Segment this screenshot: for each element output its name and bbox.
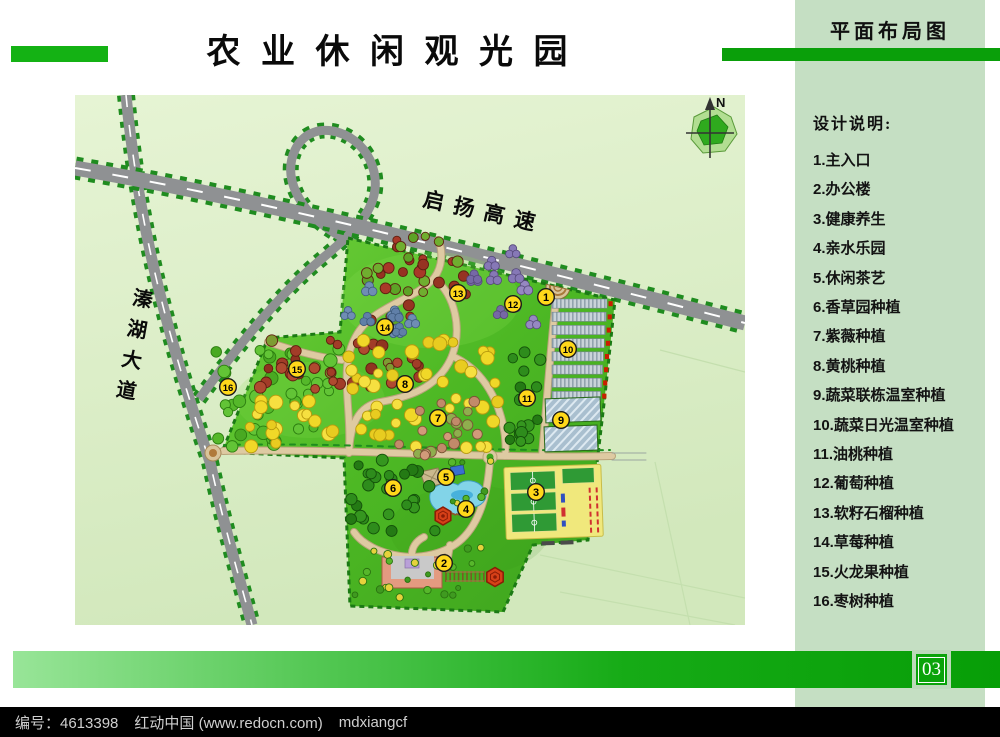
legend-item-9: 9.蔬菜联栋温室种植	[813, 381, 988, 410]
svg-text:5: 5	[443, 472, 449, 484]
map-marker-6: 6	[385, 480, 402, 497]
map-marker-13: 13	[450, 285, 467, 302]
legend-item-3: 3.健康养生	[813, 205, 988, 234]
map-marker-15: 15	[289, 361, 306, 378]
map-marker-14: 14	[377, 319, 394, 336]
svg-text:12: 12	[508, 300, 519, 311]
legend-item-16: 16.枣树种植	[813, 587, 988, 616]
site-plan-map: 12345678910111213141516 启扬高速 溱湖大道 N	[75, 95, 745, 625]
bottom-gradient-bar	[13, 651, 1000, 688]
sheet-subtitle: 平面布局图	[800, 15, 980, 44]
svg-text:6: 6	[390, 483, 396, 495]
north-letter: N	[716, 95, 725, 110]
header-green-bar	[11, 46, 108, 62]
map-marker-3: 3	[528, 484, 545, 501]
legend-item-5: 5.休闲茶艺	[813, 264, 988, 293]
svg-text:2: 2	[441, 558, 447, 570]
map-marker-2: 2	[436, 555, 453, 572]
legend-item-7: 7.紫薇种植	[813, 322, 988, 351]
map-marker-16: 16	[220, 379, 237, 396]
footer-id: 编号：4613398	[15, 712, 118, 733]
design-notes-list: 1.主入口2.办公楼3.健康养生4.亲水乐园5.休闲茶艺6.香草园种植7.紫薇种…	[813, 146, 988, 617]
map-marker-12: 12	[505, 296, 522, 313]
header-dark-green-bar	[722, 48, 1000, 61]
map-marker-5: 5	[438, 469, 455, 486]
page-title: 农 业 休 闲 观 光 园	[155, 24, 625, 73]
legend-item-6: 6.香草园种植	[813, 293, 988, 322]
svg-text:3: 3	[533, 487, 539, 499]
footer-site: 红动中国 (www.redocn.com)	[134, 712, 322, 733]
footer-bar: 编号：4613398 红动中国 (www.redocn.com) mdxiang…	[0, 707, 1000, 737]
design-notes-heading: 设计说明:	[813, 110, 892, 134]
page-number: 03	[918, 657, 945, 683]
map-marker-4: 4	[458, 501, 475, 518]
svg-text:13: 13	[453, 289, 464, 300]
map-marker-8: 8	[397, 376, 414, 393]
svg-text:10: 10	[563, 345, 574, 356]
svg-text:7: 7	[435, 413, 441, 425]
legend-item-10: 10.蔬菜日光温室种植	[813, 411, 988, 440]
legend-item-14: 14.草莓种植	[813, 528, 988, 557]
map-marker-7: 7	[430, 410, 447, 427]
legend-item-12: 12.葡萄种植	[813, 469, 988, 498]
legend-item-13: 13.软籽石榴种植	[813, 499, 988, 528]
svg-text:15: 15	[292, 365, 303, 376]
svg-text:9: 9	[558, 415, 564, 427]
legend-item-15: 15.火龙果种植	[813, 558, 988, 587]
legend-item-2: 2.办公楼	[813, 175, 988, 204]
legend-item-11: 11.油桃种植	[813, 440, 988, 469]
svg-text:11: 11	[522, 394, 533, 405]
footer-author: mdxiangcf	[339, 714, 407, 731]
svg-text:1: 1	[543, 292, 549, 304]
map-marker-1: 1	[538, 289, 555, 306]
page-number-badge: 03	[912, 650, 951, 689]
side-entrance-circle	[205, 445, 221, 461]
map-marker-11: 11	[519, 390, 536, 407]
legend-item-1: 1.主入口	[813, 146, 988, 175]
svg-text:16: 16	[223, 383, 234, 394]
svg-text:8: 8	[402, 379, 408, 391]
site-plan-svg: 12345678910111213141516	[75, 95, 745, 625]
legend-item-8: 8.黄桃种植	[813, 352, 988, 381]
sports-courts	[504, 464, 604, 546]
map-marker-9: 9	[553, 412, 570, 429]
svg-text:14: 14	[380, 323, 391, 334]
svg-text:4: 4	[463, 504, 470, 516]
map-marker-10: 10	[560, 341, 577, 358]
legend-item-4: 4.亲水乐园	[813, 234, 988, 263]
